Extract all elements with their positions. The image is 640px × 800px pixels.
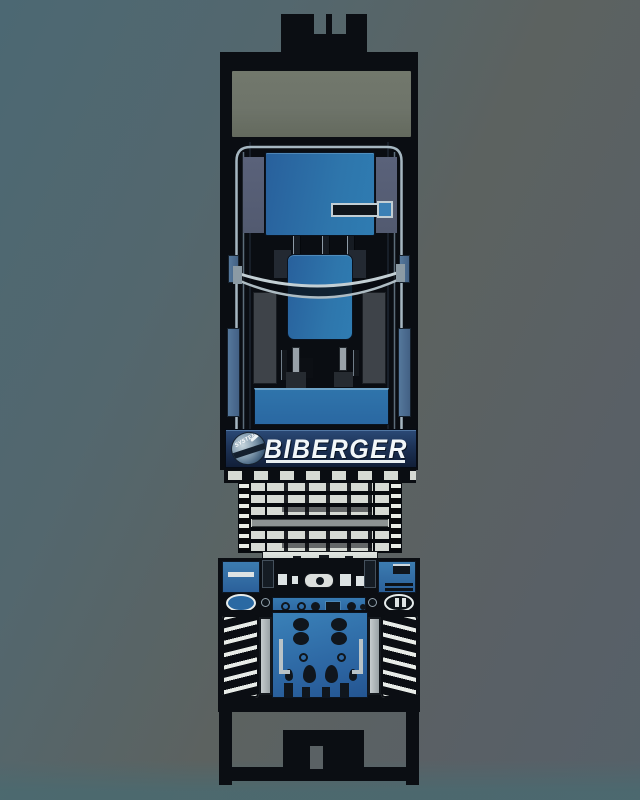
base-detail-block: [292, 576, 298, 584]
panel-oval-knob: [331, 618, 347, 631]
column-clamp-lower-right: [398, 328, 411, 417]
base-mid-cell-left: [262, 560, 274, 588]
base-mid-cell-right: [364, 560, 376, 588]
guide-bar-right: [368, 617, 381, 695]
pedestal-right: [334, 372, 353, 387]
panel-hook-right-foot: [352, 670, 363, 674]
panel-bottom-tab: [284, 683, 293, 697]
head-side-arm: [331, 203, 379, 217]
oval-bar: [395, 598, 399, 607]
slate-panel-left: [243, 157, 264, 233]
stand-center-notch: [310, 746, 323, 769]
top-cap-base: [281, 34, 367, 54]
panel-bottom-tab: [322, 687, 330, 697]
lower-thin-rod-right: [353, 350, 359, 376]
piston-rod-left: [292, 347, 300, 373]
bow-anchor-right: [396, 264, 405, 282]
head-side-arm-cap: [377, 201, 393, 218]
panel-teardrop-knob: [303, 665, 316, 683]
slate-panel-right: [376, 157, 397, 233]
stack-gray-band: [252, 519, 388, 527]
press-head-block: [265, 152, 375, 236]
stack-plates-left: [251, 483, 265, 553]
head-post: [293, 236, 301, 256]
base-section: [218, 558, 420, 616]
panel-teardrop-knob: [325, 665, 338, 683]
base-right-stripe: [385, 588, 413, 591]
stand-bottom-bar: [219, 767, 419, 781]
panel-ring: [299, 653, 308, 662]
panel-hook-left: [279, 639, 283, 673]
stack-bellows-right: [391, 484, 401, 552]
guide-bar-left: [259, 617, 272, 695]
base-right-stripe: [385, 583, 413, 586]
panel-ring: [337, 653, 346, 662]
panel-oval-knob: [293, 618, 309, 631]
base-blue-panel-left: [222, 561, 260, 593]
base-gauge: [304, 573, 334, 588]
bow-anchor-left: [233, 266, 242, 284]
panel-oval-knob: [293, 632, 309, 645]
brand-underline: [266, 460, 405, 463]
stand-center-block: [283, 730, 364, 769]
column-clamp-lower-left: [227, 328, 240, 417]
spring-bellows-left: [222, 615, 259, 698]
stack-detail-row-upper: [282, 505, 372, 512]
oval-bar: [402, 598, 406, 607]
machine-photo-background: SYSTEM BIBERGER: [0, 0, 640, 800]
base-right-connector: [393, 564, 410, 574]
panel-hook-right: [359, 639, 363, 673]
panel-bottom-tab: [340, 683, 349, 697]
spring-bellows-right: [381, 615, 418, 698]
control-panel: [272, 612, 368, 698]
base-detail-block: [278, 574, 287, 585]
stack-detail-row-lower: [282, 540, 372, 548]
piston-rod-right: [339, 347, 347, 371]
pedestal-left: [286, 372, 306, 388]
base-detail-block: [356, 576, 364, 586]
panel-bottom-tab: [302, 687, 310, 697]
safety-bow: [220, 260, 418, 320]
indicator-dot-left: [261, 598, 270, 607]
panel-hook-left-foot: [279, 670, 290, 674]
bed-block: [254, 388, 389, 425]
base-gauge-dot: [316, 577, 324, 585]
base-plate: [218, 698, 420, 712]
base-left-bar: [228, 572, 254, 577]
stack-top-flange: [224, 468, 416, 483]
head-top-panel: [232, 71, 411, 137]
stack-bellows-left: [239, 484, 249, 552]
base-detail-block: [340, 574, 351, 586]
panel-oval-knob: [331, 632, 347, 645]
base-blue-panel-right: [378, 561, 416, 593]
head-post: [322, 236, 330, 256]
logo-band: SYSTEM BIBERGER: [225, 429, 417, 468]
indicator-dot-right: [368, 598, 377, 607]
stack-plates-right: [375, 483, 389, 553]
